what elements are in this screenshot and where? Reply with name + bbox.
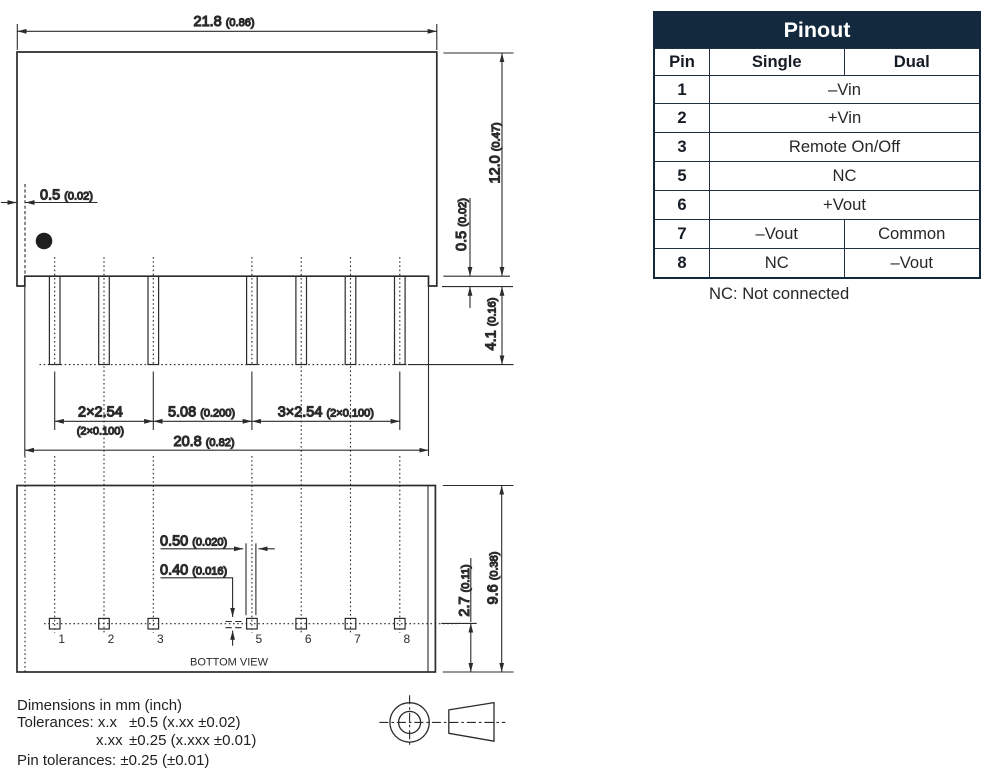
- svg-text:5: 5: [256, 632, 263, 646]
- svg-text:0.50 (0.020): 0.50 (0.020): [160, 533, 227, 549]
- svg-text:0.40 (0.016): 0.40 (0.016): [160, 563, 227, 579]
- svg-text:8: 8: [403, 632, 410, 646]
- svg-text:2.7 (0.11): 2.7 (0.11): [457, 564, 473, 616]
- svg-text:3×2.54 (2×0.100): 3×2.54 (2×0.100): [278, 404, 374, 420]
- svg-text:(2×0.100): (2×0.100): [77, 426, 124, 438]
- svg-text:7: 7: [354, 632, 361, 646]
- svg-text:21.8 (0.86): 21.8 (0.86): [194, 14, 255, 30]
- svg-text:2: 2: [108, 632, 115, 646]
- svg-text:6: 6: [305, 632, 312, 646]
- svg-text:BOTTOM VIEW: BOTTOM VIEW: [190, 657, 269, 669]
- svg-text:0.5 (0.02): 0.5 (0.02): [454, 198, 470, 251]
- svg-text:12.0 (0.47): 12.0 (0.47): [488, 123, 504, 184]
- svg-text:1: 1: [58, 632, 65, 646]
- svg-text:5.08 (0.200): 5.08 (0.200): [168, 404, 235, 420]
- svg-text:4.1 (0.16): 4.1 (0.16): [484, 298, 500, 351]
- svg-text:3: 3: [157, 632, 164, 646]
- svg-text:20.8 (0.82): 20.8 (0.82): [174, 434, 235, 450]
- svg-text:9.6 (0.38): 9.6 (0.38): [486, 552, 502, 605]
- svg-text:0.5 (0.02): 0.5 (0.02): [40, 188, 93, 204]
- svg-text:2×2.54: 2×2.54: [78, 404, 123, 420]
